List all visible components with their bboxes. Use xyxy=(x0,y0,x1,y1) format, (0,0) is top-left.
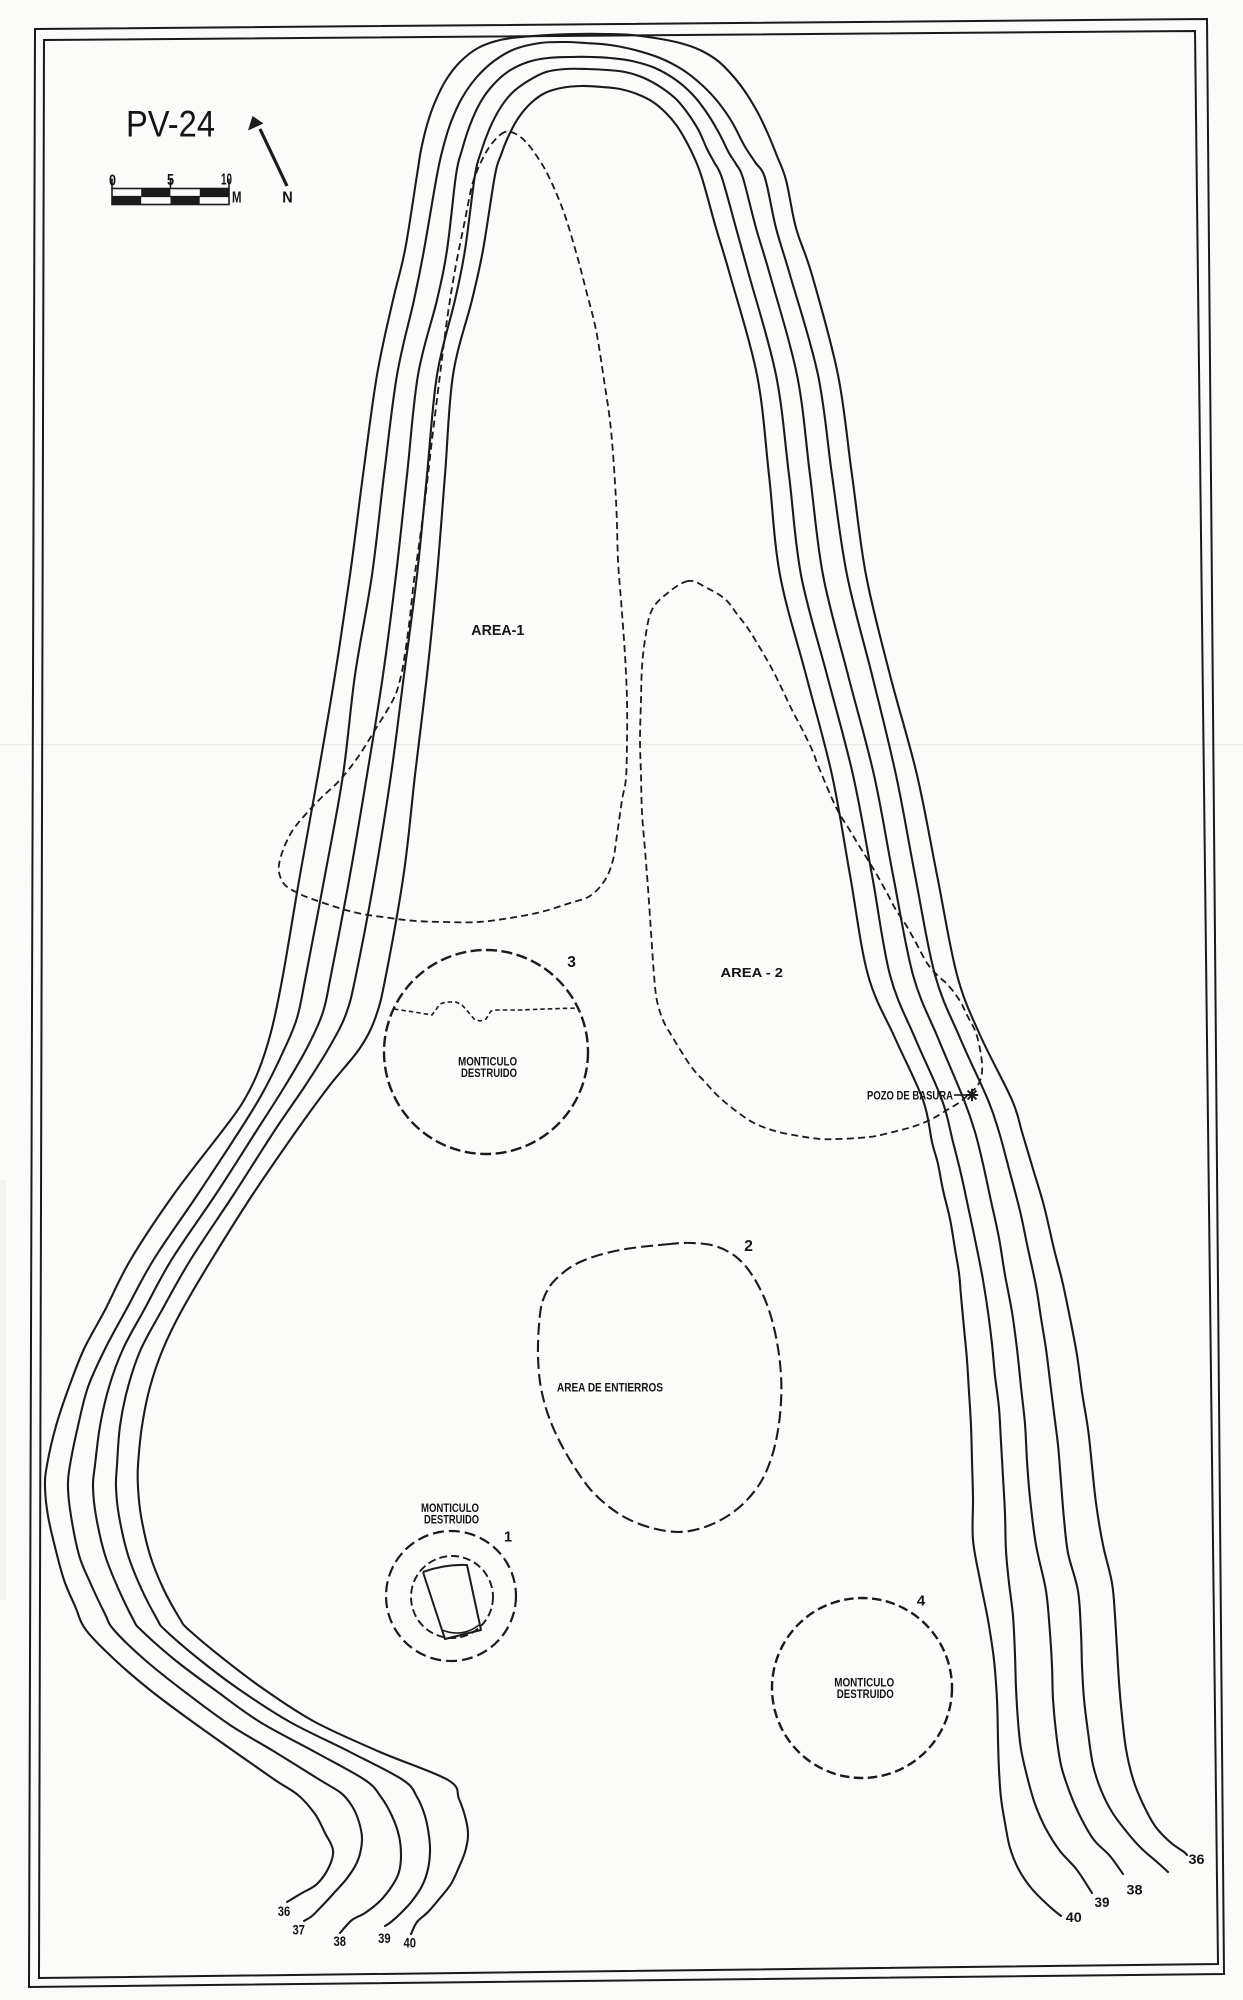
svg-text:AREA DE ENTIERROS: AREA DE ENTIERROS xyxy=(557,1381,663,1395)
svg-text:POZO DE BASURA: POZO DE BASURA xyxy=(867,1089,953,1103)
svg-text:39: 39 xyxy=(1095,1895,1110,1910)
svg-text:36: 36 xyxy=(1189,1852,1206,1867)
svg-text:0: 0 xyxy=(109,172,116,189)
svg-text:N: N xyxy=(282,190,293,207)
svg-text:3: 3 xyxy=(567,954,576,971)
svg-text:36: 36 xyxy=(278,1904,291,1919)
svg-text:4: 4 xyxy=(917,1593,926,1610)
svg-text:AREA-1: AREA-1 xyxy=(471,623,524,639)
svg-text:AREA - 2: AREA - 2 xyxy=(721,965,784,980)
svg-text:2: 2 xyxy=(744,1238,753,1255)
svg-text:DESTRUIDO: DESTRUIDO xyxy=(461,1066,517,1080)
svg-text:PV-24: PV-24 xyxy=(126,103,215,145)
svg-text:39: 39 xyxy=(378,1931,391,1946)
svg-text:DESTRUIDO: DESTRUIDO xyxy=(424,1513,479,1527)
svg-text:DESTRUIDO: DESTRUIDO xyxy=(837,1687,894,1701)
svg-text:M: M xyxy=(232,190,242,207)
svg-text:38: 38 xyxy=(334,1934,347,1949)
svg-text:37: 37 xyxy=(292,1923,305,1938)
svg-text:1: 1 xyxy=(504,1530,512,1546)
svg-text:40: 40 xyxy=(1066,1910,1082,1925)
svg-text:5: 5 xyxy=(167,172,174,189)
svg-text:40: 40 xyxy=(404,1936,417,1951)
svg-text:10: 10 xyxy=(221,172,232,189)
svg-text:38: 38 xyxy=(1127,1883,1144,1898)
